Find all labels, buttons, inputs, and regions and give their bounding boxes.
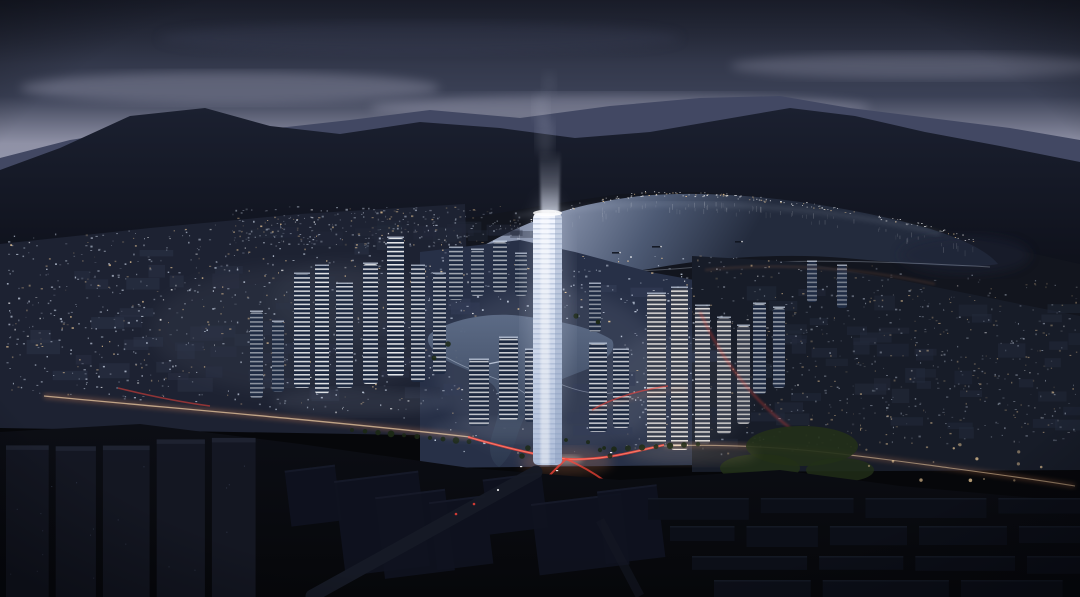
rendering-viewport: [0, 0, 1080, 597]
masterplan-night-render: [0, 0, 1080, 597]
vignette: [0, 0, 1080, 597]
